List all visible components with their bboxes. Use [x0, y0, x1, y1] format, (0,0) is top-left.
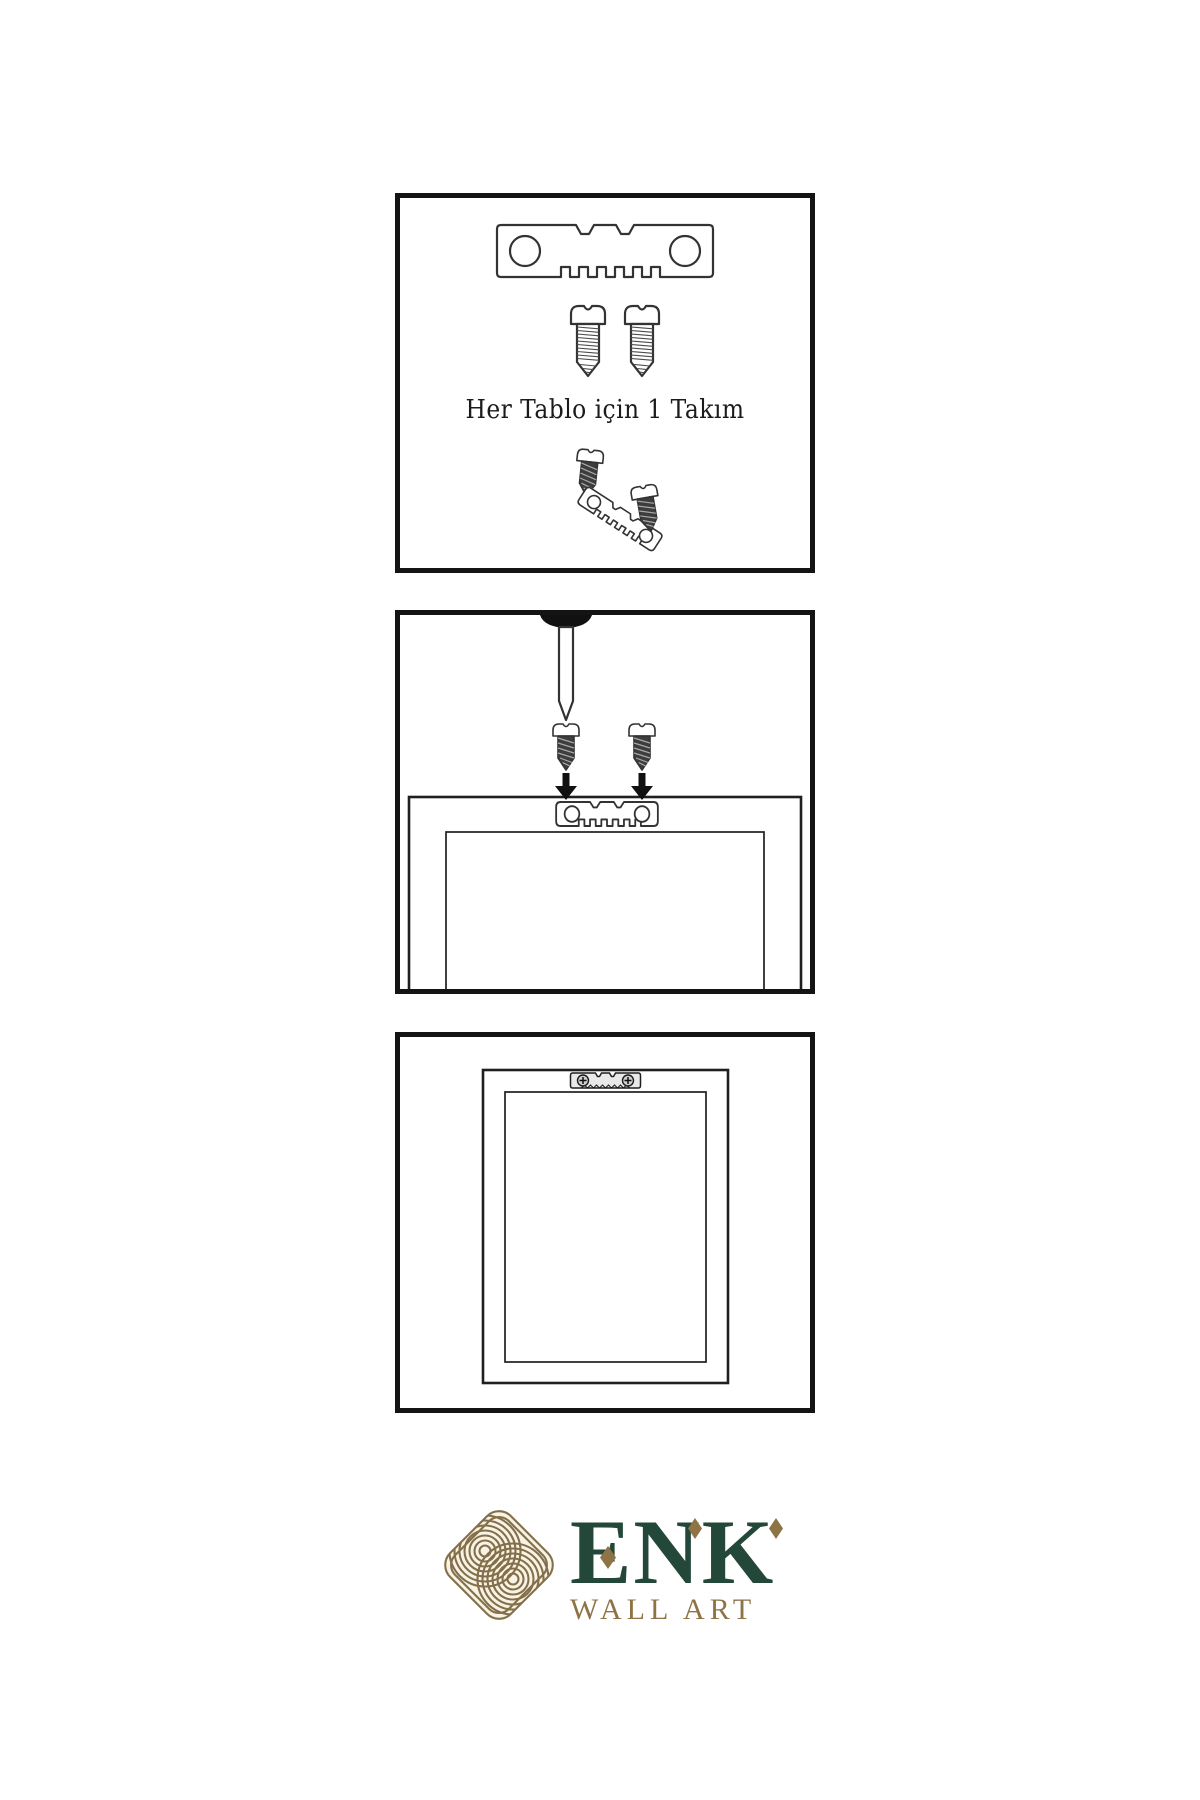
screw-icon	[553, 724, 579, 770]
wall-nail-icon	[540, 615, 592, 720]
brand-name: ENK	[570, 1506, 775, 1598]
kit-caption: Her Tablo için 1 Takım	[421, 394, 790, 426]
frame-back-icon	[409, 797, 801, 989]
screw-icon	[571, 306, 605, 376]
celtic-knot-icon	[437, 1503, 561, 1627]
mounted-sawtooth-hanger-icon	[571, 1073, 641, 1088]
screw-icon	[625, 306, 659, 376]
hung-frame-illustration	[400, 1037, 810, 1408]
sawtooth-hanger-icon	[556, 802, 658, 826]
phillips-screw-icon	[578, 1075, 589, 1086]
step1-panel: Her Tablo için 1 Takım	[395, 193, 815, 573]
mounting-illustration	[400, 615, 810, 989]
screw-icon	[629, 724, 655, 770]
frame-back-icon	[483, 1070, 728, 1383]
sawtooth-hanger-icon	[497, 225, 713, 277]
step2-panel	[395, 610, 815, 994]
hardware-kit-illustration	[400, 198, 810, 568]
phillips-screw-icon	[623, 1075, 634, 1086]
instruction-sheet: Her Tablo için 1 Takım	[0, 0, 1200, 1800]
step3-panel	[395, 1032, 815, 1413]
brand-tagline: WALL ART	[570, 1592, 756, 1628]
